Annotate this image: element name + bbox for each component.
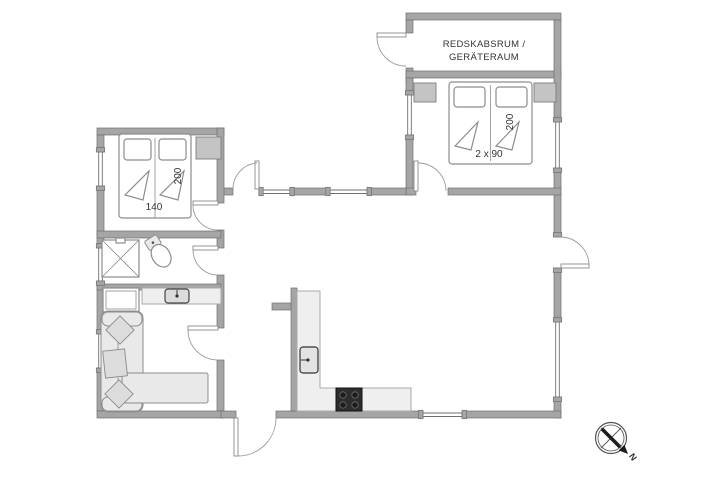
cushion-square [103,349,128,378]
bed-left-length-label: 200 [173,167,184,184]
stove [336,388,362,411]
tool-room-label-line1: REDSKABSRUM / [443,39,526,50]
kitchen [297,291,411,411]
bed-right-length-label: 200 [505,113,516,130]
door-entrance [234,418,276,456]
bathroom-fixtures [102,233,175,277]
toilet [142,233,175,271]
compass-rose: N [596,423,639,463]
bed-left-width-label: 140 [146,202,163,213]
tool-room-label-line2: GERÄTERAUM [449,52,519,63]
cabinet [103,288,139,312]
bed-right-width-label: 2 x 90 [475,149,503,160]
wardrobe [534,83,556,102]
pillow [159,139,186,160]
pillow [124,139,151,160]
vanity [103,288,221,312]
chaise [122,373,208,403]
floor-plan: REDSKABSRUM / GERÄTERAUM 2 x 90 200 140 … [0,0,718,479]
door-living-room [188,326,218,360]
shower-head [116,238,125,243]
floor-plan-drawing: REDSKABSRUM / GERÄTERAUM 2 x 90 200 140 … [0,0,718,479]
north-label: N [627,451,639,462]
door-tool-room [377,33,406,66]
pillow [454,87,485,107]
door-bathroom [193,246,218,275]
wardrobe [196,137,221,159]
burner [340,392,346,398]
door-terrace [561,237,589,268]
burner [352,392,358,398]
pillow [496,87,527,107]
door-bedroom-right [414,161,446,191]
burner [340,402,346,408]
door-bedroom-left [193,201,218,230]
wardrobe [414,83,436,102]
door-hall-north [233,161,259,189]
burner [352,402,358,408]
